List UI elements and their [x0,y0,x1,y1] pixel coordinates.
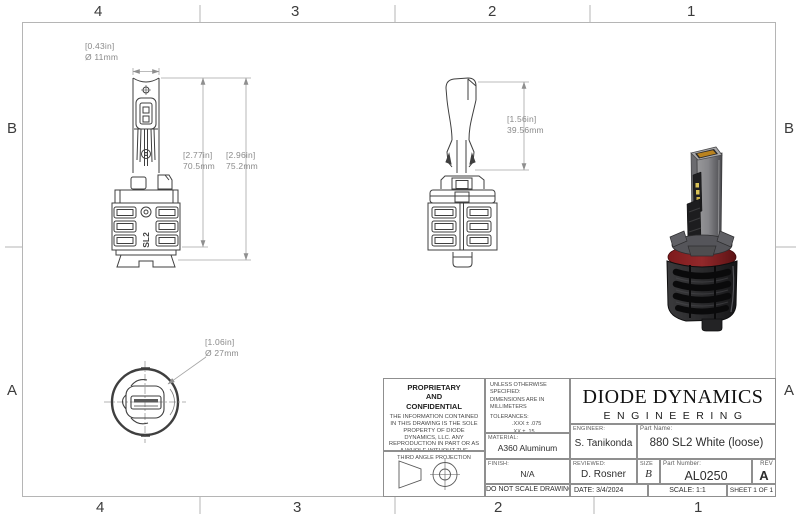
part-number-cell: Part Number: AL0250 [660,459,752,484]
company-logo: DIODE DYNAMICS [571,386,775,409]
specs-cell: UNLESS OTHERWISE SPECIFIED: DIMENSIONS A… [485,378,570,433]
sheet-value: SHEET 1 OF 1 [728,487,775,494]
reviewed-label: REVIEWED: [573,461,606,467]
dim-value-mm: 70.5mm [183,161,215,172]
logo-cell: DIODE DYNAMICS ENGINEERING [570,378,776,424]
bottom-view-drawing [104,361,186,443]
dim-front-top-callout: [0.43in] Ø 11mm [85,41,118,63]
part-number-value: AL0250 [661,469,751,483]
title-block: PROPRIETARY AND CONFIDENTIAL THE INFORMA… [383,378,776,497]
rev-label: REV [760,461,773,467]
sheet-cell: SHEET 1 OF 1 [727,484,776,497]
finish-label: FINISH: [488,461,509,467]
dim-front-height-inner: [2.77in] 70.5mm [183,150,215,172]
dim-value-mm: Ø 11mm [85,52,118,63]
material-value: A360 Aluminum [486,443,569,453]
dim-bottom-diameter: [1.06in] Ø 27mm [205,337,239,359]
date-label: DATE: [574,487,594,494]
proprietary-body: THE INFORMATION CONTAINED IN THIS DRAWIN… [384,414,484,451]
dim-value-mm: Ø 27mm [205,348,239,359]
tolerances-label: TOLERANCES: [490,414,569,421]
size-label: SIZE [640,461,653,467]
rev-cell: REV A [752,459,776,484]
projection-label: THIRD ANGLE PROJECTION [384,455,484,461]
part-name-value: 880 SL2 White (loose) [638,437,775,449]
company-logo-sub: ENGINEERING [571,410,775,422]
dim-front-height-outer: [2.96in] 75.2mm [226,150,258,172]
proprietary-title-line: CONFIDENTIAL [384,402,484,411]
dim-value-mm: 39.56mm [507,125,544,136]
dim-value-mm: 75.2mm [226,161,258,172]
finish-value: N/A [486,469,569,479]
front-view-drawing: SL2 [112,78,180,267]
scale-cell: SCALE: 1:1 [648,484,727,497]
dim-value-in: [1.56in] [507,114,544,125]
part-number-label: Part Number: [663,461,701,467]
projection-cell: THIRD ANGLE PROJECTION [383,451,485,497]
size-cell: SIZE B [637,459,660,484]
proprietary-title-line: AND [384,392,484,401]
proprietary-title-line: PROPRIETARY [384,383,484,392]
date-cell: DATE: 3/4/2024 [570,484,648,497]
reviewed-value: D. Rosner [571,469,636,480]
engineer-cell: ENGINEER: S. Tanikonda [570,424,637,459]
proprietary-cell: PROPRIETARY AND CONFIDENTIAL THE INFORMA… [383,378,485,451]
material-cell: MATERIAL: A360 Aluminum [485,433,570,459]
reviewed-cell: REVIEWED: D. Rosner [570,459,637,484]
part-name-cell: Part Name: 880 SL2 White (loose) [637,424,776,459]
dim-value-in: [2.77in] [183,150,215,161]
rev-value: A [753,468,775,483]
part-name-label: Part Name: [640,426,672,432]
engineer-value: S. Tanikonda [571,438,636,449]
finish-cell: FINISH: N/A [485,459,570,484]
size-value: B [638,468,659,480]
drawing-sheet: 4 3 2 1 4 3 2 1 B A B A [0,0,800,518]
specs-dims: DIMENSIONS ARE IN MILLIMETERS [490,397,569,412]
front-view-sl2-mark: SL2 [141,232,151,248]
do-not-scale-text: DO NOT SCALE DRAWING [486,486,569,493]
scale-value: SCALE: 1:1 [649,487,726,494]
dim-value-in: [1.06in] [205,337,239,348]
dim-value-in: [0.43in] [85,41,118,52]
dim-value-in: [2.96in] [226,150,258,161]
side-view-drawing [428,78,497,267]
product-render [667,147,737,331]
date-value: 3/4/2024 [596,487,623,494]
dim-side-height: [1.56in] 39.56mm [507,114,544,136]
tolerance-line: .XXX ± .075 [490,421,569,428]
specs-unless: UNLESS OTHERWISE SPECIFIED: [490,382,569,397]
engineer-label: ENGINEER: [573,426,605,432]
do-not-scale-cell: DO NOT SCALE DRAWING [485,484,570,497]
material-label: MATERIAL: [488,435,518,441]
